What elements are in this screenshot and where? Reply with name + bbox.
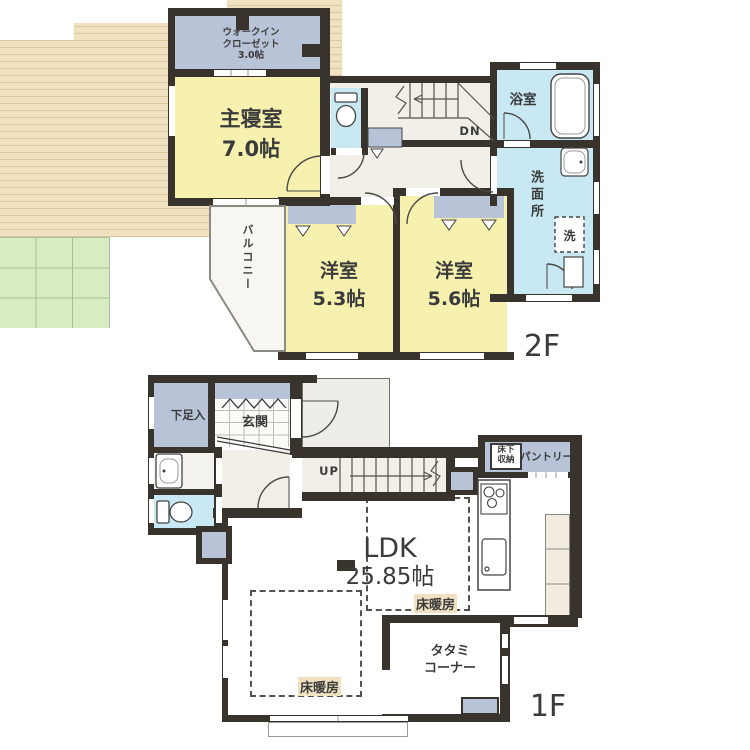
floor2-label: 2F bbox=[513, 329, 571, 364]
west-room2-name: 洋室 bbox=[408, 257, 500, 285]
shoe-storage-label: 下足入 bbox=[164, 407, 212, 423]
master-bedroom-name: 主寝室 bbox=[186, 104, 316, 134]
door-opening bbox=[216, 458, 222, 484]
door-opening bbox=[291, 399, 301, 438]
wall bbox=[148, 489, 220, 495]
wall bbox=[382, 615, 510, 623]
floor-heating-right-label: 床暖房 bbox=[414, 594, 457, 613]
tatami-corner-label: タタミ コーナー bbox=[418, 643, 482, 677]
wall bbox=[382, 615, 390, 670]
stair-storage bbox=[451, 472, 473, 490]
walkin-closet-line2: クローゼット bbox=[196, 39, 306, 51]
wall bbox=[148, 447, 220, 453]
balcony-label: バルコニー bbox=[239, 224, 255, 292]
floor1-label: 1F bbox=[519, 689, 577, 724]
pantry-label: パントリー bbox=[520, 449, 572, 464]
master-bedroom-size: 7.0帖 bbox=[186, 134, 316, 164]
stairs-up-label: UP bbox=[315, 464, 343, 478]
walkin-closet-line1: ウォークイン bbox=[196, 27, 306, 39]
west-room2-label: 洋室 5.6帖 bbox=[408, 257, 500, 313]
door-opening bbox=[361, 197, 394, 205]
closet-entrance bbox=[215, 383, 290, 399]
wall bbox=[478, 435, 578, 442]
ldk-name: LDK bbox=[330, 534, 450, 564]
closet-west1 bbox=[288, 205, 356, 224]
bath-label: 浴室 bbox=[503, 88, 543, 108]
tatami-storage-box bbox=[462, 698, 498, 714]
wall bbox=[213, 508, 302, 518]
window-opening bbox=[594, 182, 599, 214]
window-opening bbox=[149, 458, 154, 484]
room-washbasin-1f bbox=[154, 453, 214, 489]
room-tatami-corner bbox=[0, 237, 110, 328]
door-opening bbox=[491, 156, 497, 194]
window-opening bbox=[213, 199, 279, 205]
door-opening bbox=[321, 156, 330, 194]
window-opening bbox=[594, 84, 599, 136]
washroom-label: 洗面所 bbox=[526, 170, 545, 221]
window-opening bbox=[306, 353, 358, 359]
tatami-line1: タタミ bbox=[418, 643, 482, 660]
window-opening bbox=[169, 86, 175, 136]
stairs-down-label: DN bbox=[455, 124, 485, 138]
underfloor-line2: 収納 bbox=[490, 455, 522, 465]
kitchen-counter bbox=[478, 480, 510, 590]
entrance-label: 玄関 bbox=[238, 411, 272, 430]
ldk-size: 25.85帖 bbox=[330, 564, 450, 591]
window-opening bbox=[270, 716, 408, 721]
floor-plan: ウォークイン クローゼット 3.0帖 主寝室 7.0帖 バルコニー 浴室 洗面所… bbox=[0, 0, 750, 750]
walkin-closet-label: ウォークイン クローゼット 3.0帖 bbox=[196, 27, 306, 62]
wall bbox=[400, 140, 497, 147]
west-room2-size: 5.6帖 bbox=[408, 285, 500, 313]
wall bbox=[361, 88, 368, 150]
window-opening bbox=[514, 617, 548, 624]
west-room1-label: 洋室 5.3帖 bbox=[293, 257, 385, 313]
underfloor-line1: 床下 bbox=[490, 445, 522, 455]
door-opening bbox=[336, 148, 362, 155]
tatami-door-mark bbox=[482, 698, 499, 714]
wall bbox=[278, 197, 285, 360]
west-room1-size: 5.3帖 bbox=[293, 285, 385, 313]
storage-box bbox=[202, 532, 226, 558]
floor-heating-left-label: 床暖房 bbox=[298, 677, 341, 696]
window-opening bbox=[420, 353, 484, 359]
door-opening bbox=[216, 497, 222, 523]
hall-1f bbox=[215, 450, 290, 508]
window-opening bbox=[520, 63, 556, 69]
door-opening bbox=[504, 141, 530, 147]
door-opening bbox=[406, 188, 440, 196]
wall bbox=[393, 188, 400, 360]
underfloor-storage-label: 床下 収納 bbox=[490, 445, 522, 465]
kitchen-sink-icon bbox=[482, 539, 506, 575]
wall bbox=[507, 190, 514, 302]
door-opening bbox=[214, 70, 266, 76]
wall bbox=[292, 447, 485, 458]
window-opening bbox=[149, 499, 154, 523]
wall bbox=[168, 8, 330, 16]
west-room1-name: 洋室 bbox=[293, 257, 385, 285]
dining-counter bbox=[545, 514, 570, 618]
window-opening bbox=[149, 397, 154, 429]
entrance-porch bbox=[302, 378, 390, 448]
window-opening bbox=[223, 600, 228, 640]
wall bbox=[302, 492, 455, 501]
master-bedroom-label: 主寝室 7.0帖 bbox=[186, 104, 316, 164]
window-opening bbox=[502, 634, 508, 648]
window-opening bbox=[502, 656, 508, 684]
terrace-step bbox=[268, 722, 408, 737]
window-opening bbox=[223, 646, 228, 678]
ldk-label: LDK 25.85帖 bbox=[330, 534, 450, 591]
wall bbox=[330, 76, 497, 83]
window-opening bbox=[594, 250, 599, 284]
laundry-label: 洗 bbox=[555, 227, 584, 244]
window-opening bbox=[526, 295, 572, 301]
room-toilet-1f bbox=[154, 495, 214, 528]
tatami-line2: コーナー bbox=[418, 660, 482, 677]
room-toilet-2f bbox=[331, 88, 361, 150]
door-opening bbox=[528, 472, 568, 478]
walkin-closet-size: 3.0帖 bbox=[196, 50, 306, 62]
kitchen-stove-icon bbox=[478, 480, 510, 590]
